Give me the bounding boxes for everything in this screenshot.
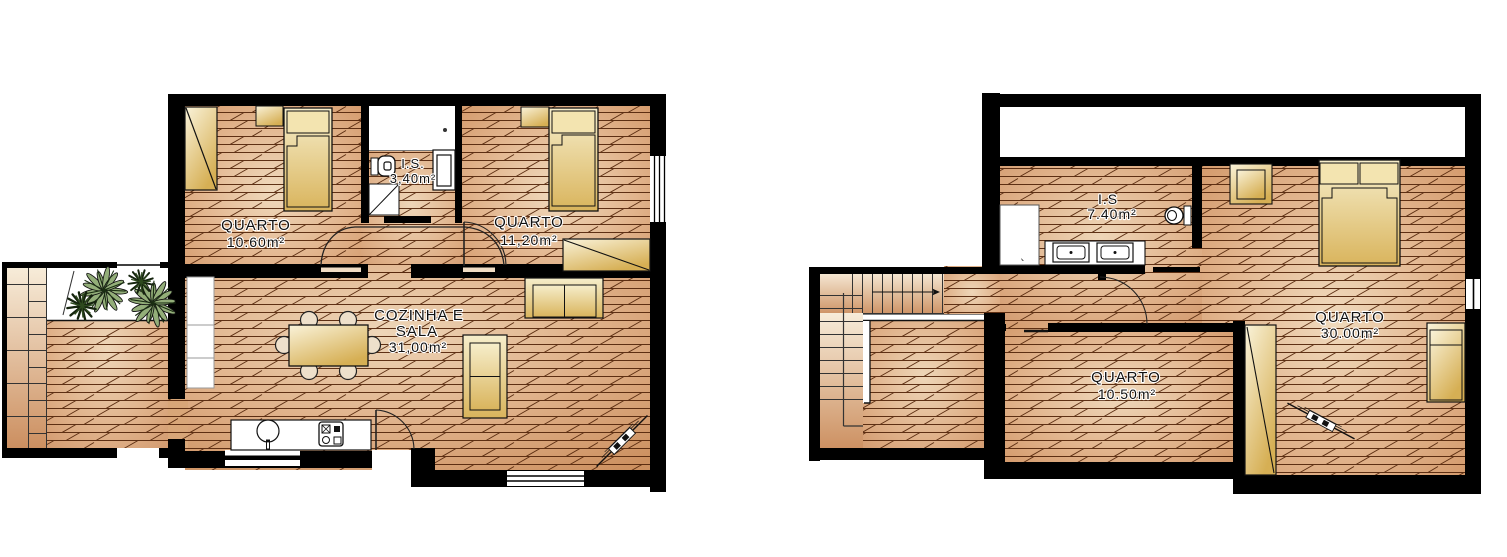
- svg-text:QUARTO: QUARTO: [1315, 309, 1385, 326]
- svg-text:10.60m²: 10.60m²: [227, 234, 285, 250]
- svg-text:31,00m²: 31,00m²: [389, 339, 447, 355]
- svg-text:7.40m²: 7.40m²: [1087, 206, 1137, 222]
- svg-text:QUARTO: QUARTO: [221, 217, 291, 234]
- svg-text:I.S.: I.S.: [401, 156, 425, 171]
- svg-text:QUARTO: QUARTO: [494, 214, 564, 231]
- svg-text:10.50m²: 10.50m²: [1098, 386, 1156, 402]
- svg-text:3,40m²: 3,40m²: [390, 171, 436, 186]
- svg-text:SALA: SALA: [396, 323, 438, 340]
- svg-text:11,20m²: 11,20m²: [500, 232, 557, 248]
- svg-text:QUARTO: QUARTO: [1091, 369, 1161, 386]
- svg-text:COZINHA E: COZINHA E: [374, 307, 464, 324]
- svg-text:I.S: I.S: [1098, 191, 1118, 207]
- svg-text:30.00m²: 30.00m²: [1321, 325, 1379, 341]
